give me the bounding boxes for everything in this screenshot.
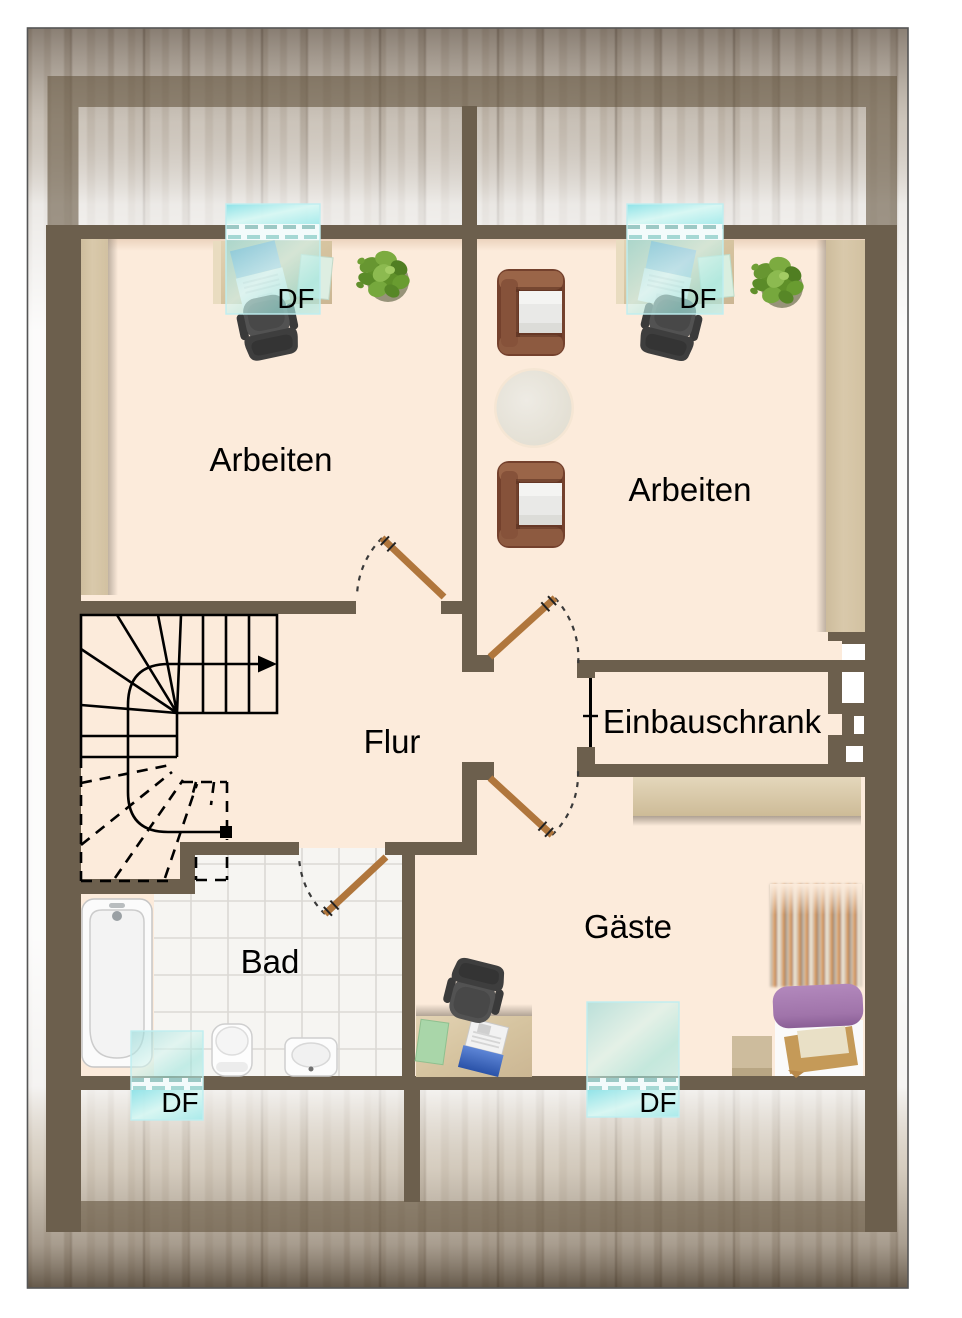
svg-text:Arbeiten: Arbeiten bbox=[210, 441, 333, 478]
svg-text:Flur: Flur bbox=[364, 723, 421, 760]
svg-text:Bad: Bad bbox=[241, 943, 300, 980]
svg-text:Gäste: Gäste bbox=[584, 908, 672, 945]
svg-text:Einbauschrank: Einbauschrank bbox=[603, 703, 822, 740]
svg-text:DF: DF bbox=[277, 283, 314, 314]
svg-text:DF: DF bbox=[679, 283, 716, 314]
svg-text:DF: DF bbox=[161, 1087, 198, 1118]
svg-text:Arbeiten: Arbeiten bbox=[629, 471, 752, 508]
svg-text:DF: DF bbox=[639, 1087, 676, 1118]
